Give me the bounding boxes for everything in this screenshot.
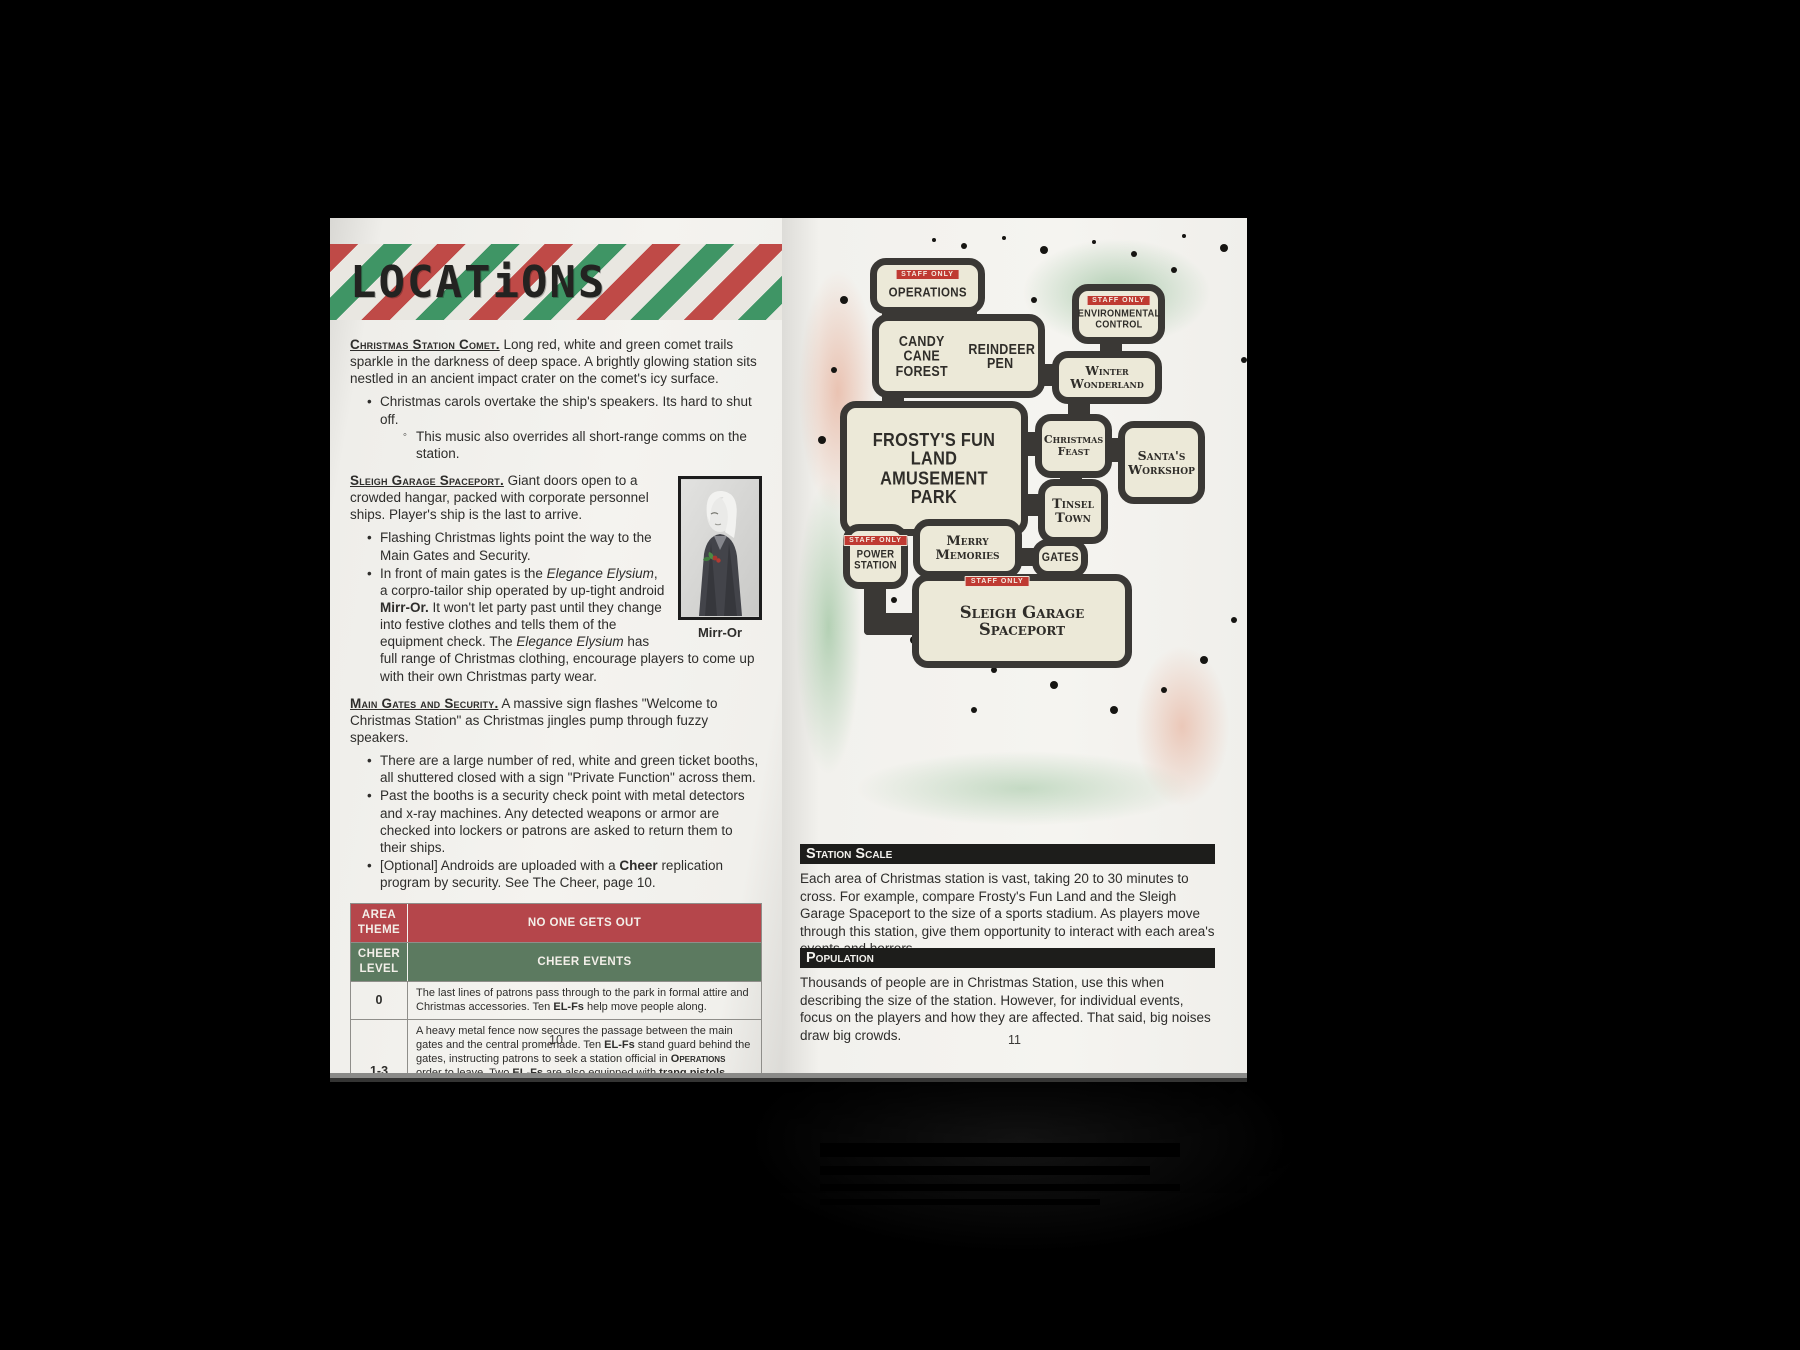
header-cell-area-theme: AREA THEME [351, 904, 408, 942]
comet-paragraph: Christmas Station Comet. Long red, white… [350, 336, 762, 387]
table-header-row-cheer: CHEER LEVEL CHEER EVENTS [351, 942, 761, 981]
bullet-item: In front of main gates is the Elegance E… [366, 565, 762, 685]
left-column: Christmas Station Comet. Long red, white… [330, 320, 782, 1073]
comet-bullets: Christmas carols overtake the ship's spe… [350, 393, 762, 462]
map-area-operations: STAFF ONLY Operations [870, 258, 985, 314]
gates-title: Main Gates and Security. [350, 696, 498, 711]
book-spread: LOCATiONS Christmas Station Comet. Long … [330, 218, 1247, 1073]
print-artifact-bar [820, 1166, 1150, 1175]
staff-only-badge: STAFF ONLY [895, 269, 960, 280]
page-right: STAFF ONLY Operations STAFF ONLY Environ… [782, 218, 1247, 1073]
map-area-winter-wonderland: Winter Wonderland [1052, 351, 1162, 404]
print-artifact-bar [820, 1143, 1180, 1157]
map-area-frostys-fun-land: Frosty's Fun Land Amusement Park [840, 401, 1028, 536]
page-title: LOCATiONS [330, 257, 606, 308]
gates-bullets: There are a large number of red, white a… [350, 752, 762, 891]
station-map: STAFF ONLY Operations STAFF ONLY Environ… [782, 218, 1247, 838]
page-number-right: 11 [782, 1033, 1247, 1047]
station-scale-header: Station Scale [800, 844, 1215, 864]
gates-paragraph: Main Gates and Security. A massive sign … [350, 695, 762, 746]
map-area-environmental-control: STAFF ONLY Environmental Control [1072, 284, 1165, 344]
bullet-item: Past the booths is a security check poin… [366, 787, 762, 856]
page-number-left: 10 [330, 1033, 782, 1047]
map-area-candy-cane-forest: Candy Cane Forest [885, 334, 957, 378]
spaceport-title: Sleigh Garage Spaceport. [350, 473, 504, 488]
bullet-item: There are a large number of red, white a… [366, 752, 762, 786]
map-area-christmas-feast: Christmas Feast [1035, 414, 1112, 478]
staff-only-badge: STAFF ONLY [1086, 295, 1151, 306]
table-header-row-theme: AREA THEME NO ONE GETS OUT [351, 904, 761, 942]
staff-only-badge: STAFF ONLY [843, 535, 908, 546]
bullet-item: [Optional] Androids are uploaded with a … [366, 857, 762, 891]
bullet-item: Christmas carols overtake the ship's spe… [366, 393, 762, 462]
map-area-sleigh-garage-spaceport: STAFF ONLY Sleigh Garage Spaceport [912, 574, 1132, 668]
comet-title: Christmas Station Comet. [350, 337, 500, 352]
population-header: Population [800, 948, 1215, 968]
map-area-reindeer-pen: Reindeer Pen [968, 341, 1032, 370]
spaceport-bullets: Flashing Christmas lights point the way … [350, 529, 762, 684]
header-cell-cheer-events: CHEER EVENTS [408, 943, 761, 981]
spaceport-section: Mirr-Or Sleigh Garage Spaceport. Giant d… [350, 472, 762, 685]
page-left: LOCATiONS Christmas Station Comet. Long … [330, 218, 782, 1073]
cheer-level-cell: 0 [351, 982, 408, 1019]
map-area-merry-memories: Merry Memories [913, 519, 1022, 578]
print-artifact-bar [820, 1199, 1100, 1205]
sub-bullet-item: This music also overrides all short-rang… [402, 428, 762, 462]
map-area-santas-workshop: Santa's Workshop [1118, 421, 1205, 504]
bullet-item: Flashing Christmas lights point the way … [366, 529, 762, 563]
canvas: LOCATiONS Christmas Station Comet. Long … [0, 0, 1800, 1350]
map-area-gates: Gates [1032, 539, 1088, 578]
cheer-event-cell: The last lines of patrons pass through t… [408, 982, 761, 1019]
staff-only-badge: STAFF ONLY [965, 576, 1030, 587]
cheer-table: AREA THEME NO ONE GETS OUT CHEER LEVEL C… [350, 903, 762, 1073]
header-cell-theme-value: NO ONE GETS OUT [408, 904, 761, 942]
map-area-candy-cane-forest-reindeer-pen: Candy Cane Forest Reindeer Pen [872, 314, 1045, 398]
ink-splatter [932, 238, 936, 242]
map-area-tinsel-town: Tinsel Town [1038, 479, 1108, 544]
station-scale-body: Each area of Christmas station is vast, … [800, 870, 1215, 958]
table-row: 0 The last lines of patrons pass through… [351, 981, 761, 1019]
map-connector [864, 613, 916, 635]
header-cell-cheer-level: CHEER LEVEL [351, 943, 408, 981]
map-area-power-station: STAFF ONLY Power Station [843, 524, 908, 589]
locations-banner: LOCATiONS [330, 244, 782, 320]
print-artifact-bar [820, 1184, 1180, 1191]
